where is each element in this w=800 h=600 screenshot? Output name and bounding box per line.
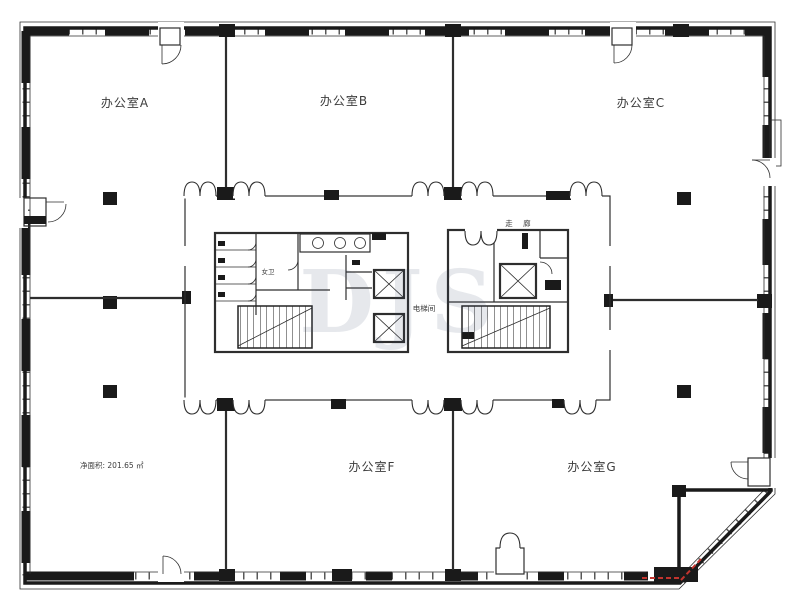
label-elevator-room: 电梯间: [413, 303, 436, 313]
door-left: [16, 198, 66, 228]
door-bottom-center: [494, 533, 524, 580]
door-right-lower: [731, 458, 776, 488]
elevator-shaft-3: [500, 264, 536, 298]
label-office-b: 办公室B: [320, 93, 368, 108]
door-bottom-left: [158, 556, 184, 582]
label-corridor: 走 廊: [505, 218, 534, 228]
door-right-upper: [752, 158, 776, 186]
label-womens-restroom: 女卫: [262, 267, 276, 276]
floor-plan-drawing: DJS 办公室A 办公室B 办公室C 办公室F 办公室G 走 廊 电梯间 女卫 …: [0, 0, 800, 600]
corner-l-wall: [672, 485, 771, 581]
door-top-left: [158, 22, 184, 64]
label-net-area: 净面积: 201.65 ㎡: [80, 460, 144, 470]
label-office-c: 办公室C: [617, 95, 665, 110]
toilet-fixtures: [218, 241, 225, 297]
label-office-a: 办公室A: [101, 95, 149, 110]
label-office-g: 办公室G: [567, 459, 616, 474]
floor-plan-canvas: DJS 办公室A 办公室B 办公室C 办公室F 办公室G 走 廊 电梯间 女卫 …: [0, 0, 800, 600]
watermark-text: DJS: [299, 252, 500, 353]
label-office-f: 办公室F: [349, 459, 396, 474]
toilet-stall-doors: [248, 242, 256, 301]
door-top-right: [610, 22, 636, 63]
sink-counter: [300, 234, 370, 252]
